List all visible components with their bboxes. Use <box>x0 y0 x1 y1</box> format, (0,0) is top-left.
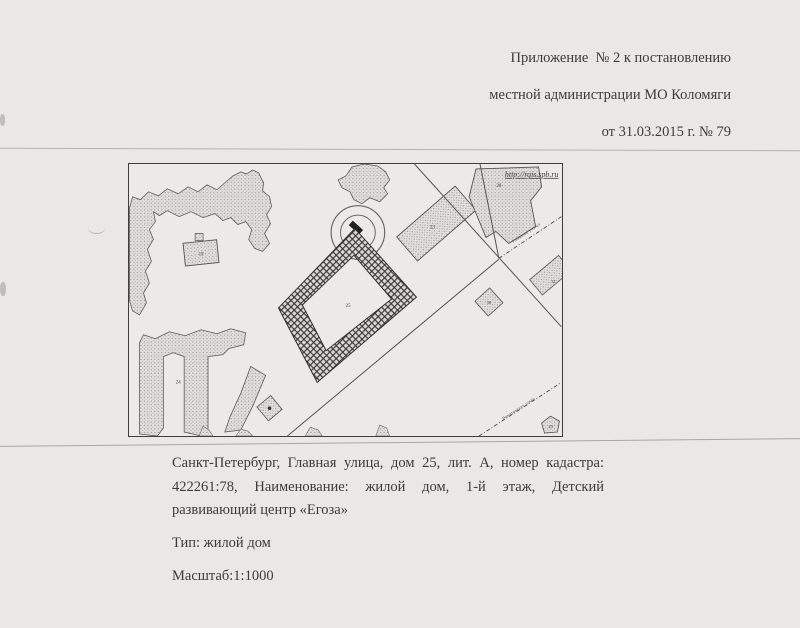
building-label-31: 31 <box>551 279 556 284</box>
building-label-30: 30 <box>487 300 492 305</box>
border-fragment <box>376 425 390 436</box>
diamond-dot <box>268 406 272 410</box>
header-line-administration: местной администрации МО Коломяги <box>489 77 731 114</box>
building-label-23: 23 <box>430 226 435 231</box>
building-chevron <box>225 367 266 433</box>
header-line-date-number: от 31.03.2015 г. № 79 <box>489 114 731 151</box>
building-31 <box>530 255 562 294</box>
building-label-28: 28 <box>496 184 501 189</box>
scan-fold-line-bottom <box>0 438 800 447</box>
scan-edge-smudge <box>0 282 6 296</box>
header-line-appendix: Приложение № 2 к постановлению <box>489 40 731 77</box>
building-top-blob <box>338 164 390 204</box>
building-label-25: 25 <box>346 304 351 309</box>
building-label-29: 29 <box>548 424 553 429</box>
cadastral-map: http://rgis.spb.ru Главная улица Никитин… <box>128 163 563 437</box>
small-marker-glyph <box>195 233 203 240</box>
caption-block: Санкт-Петербург, Главная улица, дом 25, … <box>172 452 604 589</box>
building-label-19: 19 <box>199 252 204 257</box>
address-text: Санкт-Петербург, Главная улица, дом 25, … <box>172 452 604 523</box>
rgis-url-watermark: http://rgis.spb.ru <box>505 170 559 179</box>
type-text: Тип: жилой дом <box>172 532 604 556</box>
scanned-document-page: Приложение № 2 к постановлению местной а… <box>0 0 800 628</box>
pencil-arc-mark <box>88 222 105 234</box>
scan-edge-smudge <box>0 114 5 126</box>
border-fragment <box>305 427 322 436</box>
building-label-24: 24 <box>176 380 181 385</box>
scale-text: Масштаб:1:1000 <box>172 565 604 589</box>
document-header: Приложение № 2 к постановлению местной а… <box>489 40 731 151</box>
street-label-southeast: Никитинская улица <box>502 396 536 420</box>
cadastral-map-drawing: http://rgis.spb.ru Главная улица Никитин… <box>129 164 562 436</box>
building-23 <box>397 186 476 261</box>
